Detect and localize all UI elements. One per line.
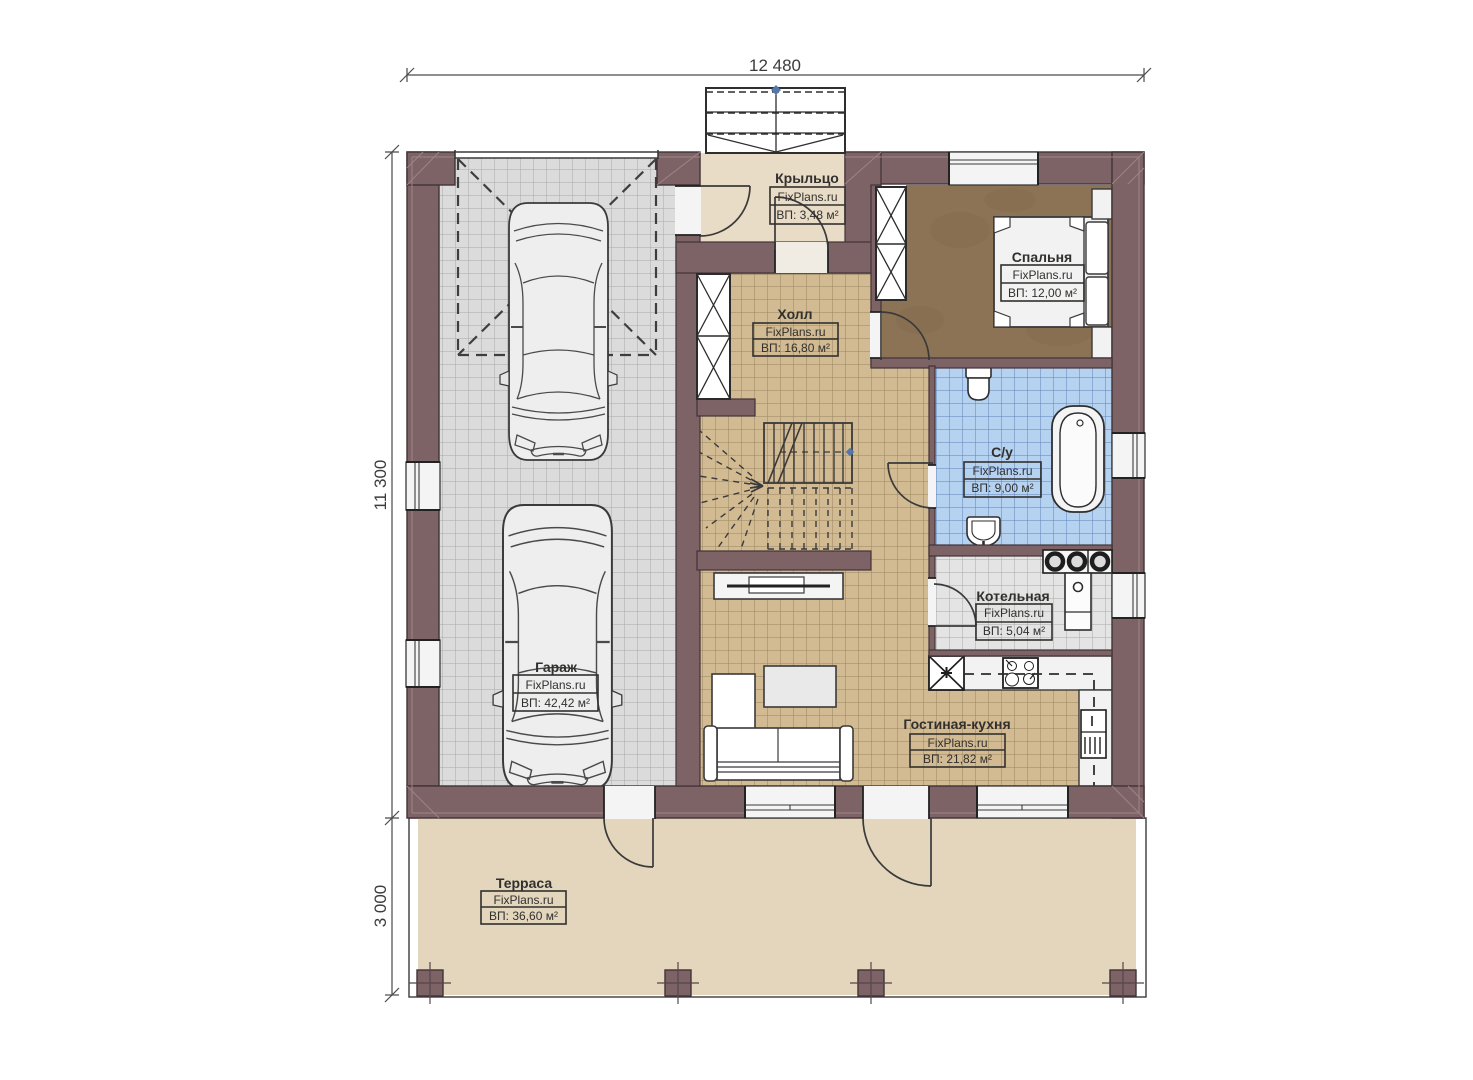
svg-text:ВП: 36,60 м²: ВП: 36,60 м²	[489, 909, 558, 923]
svg-text:Гостиная-кухня: Гостиная-кухня	[903, 716, 1010, 732]
svg-text:ВП: 12,00 м²: ВП: 12,00 м²	[1008, 286, 1077, 300]
svg-text:FixPlans.ru: FixPlans.ru	[984, 606, 1044, 620]
svg-text:FixPlans.ru: FixPlans.ru	[765, 325, 825, 339]
svg-text:FixPlans.ru: FixPlans.ru	[927, 736, 987, 750]
svg-text:FixPlans.ru: FixPlans.ru	[777, 190, 837, 204]
svg-text:Холл: Холл	[777, 306, 812, 322]
svg-text:ВП: 9,00 м²: ВП: 9,00 м²	[971, 481, 1033, 495]
svg-text:FixPlans.ru: FixPlans.ru	[493, 893, 553, 907]
svg-text:ВП: 42,42 м²: ВП: 42,42 м²	[521, 696, 590, 710]
svg-text:ВП: 21,82 м²: ВП: 21,82 м²	[923, 752, 992, 766]
svg-text:12 480: 12 480	[749, 56, 801, 75]
svg-text:FixPlans.ru: FixPlans.ru	[972, 464, 1032, 478]
svg-text:ВП: 16,80 м²: ВП: 16,80 м²	[761, 341, 830, 355]
svg-text:Гараж: Гараж	[535, 659, 578, 675]
svg-text:ВП: 3,48 м²: ВП: 3,48 м²	[776, 208, 838, 222]
svg-text:Крыльцо: Крыльцо	[775, 170, 839, 186]
svg-text:11 300: 11 300	[371, 460, 390, 511]
svg-text:FixPlans.ru: FixPlans.ru	[525, 678, 585, 692]
svg-text:С/у: С/у	[991, 444, 1013, 460]
svg-text:Терраса: Терраса	[496, 875, 552, 891]
svg-text:Котельная: Котельная	[976, 588, 1049, 604]
svg-text:3 000: 3 000	[371, 885, 390, 928]
svg-text:ВП: 5,04 м²: ВП: 5,04 м²	[983, 624, 1045, 638]
svg-text:FixPlans.ru: FixPlans.ru	[1012, 268, 1072, 282]
svg-text:Спальня: Спальня	[1012, 249, 1072, 265]
